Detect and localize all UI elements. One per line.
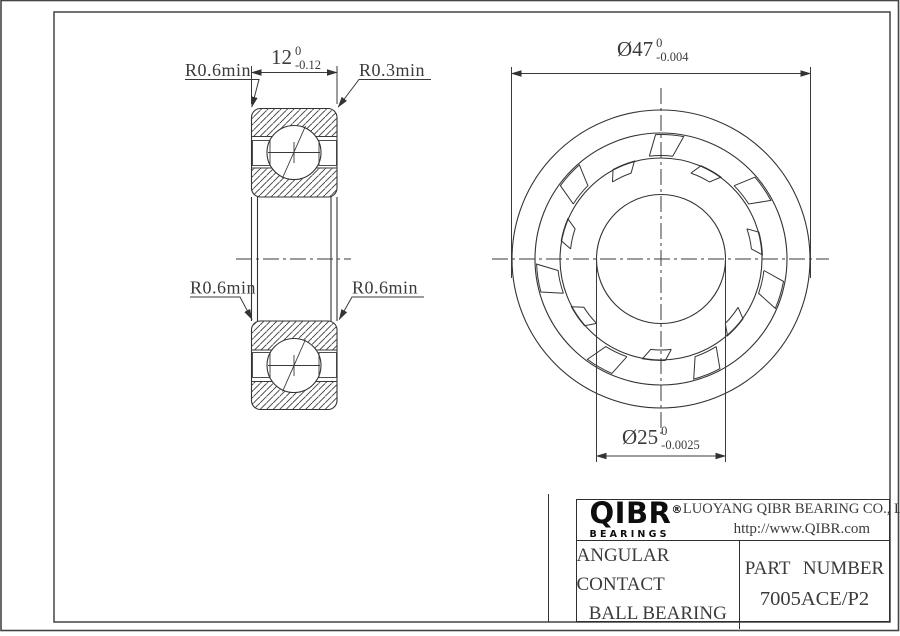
outer-dia-value: Ø47 xyxy=(617,39,653,60)
bore-dia-tol-upper: 0 xyxy=(661,424,700,438)
width-tol-lower: -0.12 xyxy=(295,58,321,72)
title-block-header-row: QIBR® BEARINGS LUOYANG QIBR BEARING CO.,… xyxy=(577,500,890,541)
company-info: LUOYANG QIBR BEARING CO., LTD http://www… xyxy=(683,501,900,538)
cage-section-right xyxy=(319,141,337,166)
outer-dia-tol-upper: 0 xyxy=(656,36,688,50)
outer-dia-tol-lower: -0.004 xyxy=(656,50,688,64)
title-block-divider-line xyxy=(548,494,549,622)
radius-label-mid-left: R0.6min xyxy=(190,278,256,298)
cross-section-view: R0.6min R0.3min R0.6min R0.6min xyxy=(185,60,431,410)
website-url: http://www.QIBR.com xyxy=(683,521,900,538)
radius-label-top-right: R0.3min xyxy=(359,60,425,80)
bore-diameter-text: Ø25 0 -0.0025 xyxy=(622,427,700,452)
engineering-drawing-canvas: R0.6min R0.3min R0.6min R0.6min xyxy=(0,0,900,636)
width-value: 12 xyxy=(271,47,292,68)
logo-tagline: BEARINGS xyxy=(590,529,683,540)
outer-diameter-text: Ø47 0 -0.004 xyxy=(617,39,688,64)
title-block: QIBR® BEARINGS LUOYANG QIBR BEARING CO.,… xyxy=(576,499,891,622)
top-section xyxy=(252,109,338,198)
radius-label-mid-right: R0.6min xyxy=(352,278,418,298)
radius-label-top-left: R0.6min xyxy=(185,60,251,80)
part-number-value: 7005ACE/P2 xyxy=(760,584,869,615)
registered-trademark-icon: ® xyxy=(671,503,683,516)
company-name: LUOYANG QIBR BEARING CO., LTD xyxy=(683,501,900,518)
product-name-line1: ANGULAR CONTACT xyxy=(577,541,740,600)
product-name-line2: BALL BEARING xyxy=(589,599,727,628)
part-number-label: PART NUMBER xyxy=(745,555,884,584)
front-view xyxy=(492,67,829,462)
bore-dia-value: Ø25 xyxy=(622,427,658,448)
cage-section-right-2 xyxy=(319,353,337,378)
part-number-cell: PART NUMBER 7005ACE/P2 xyxy=(740,541,889,629)
title-block-detail-row: ANGULAR CONTACT BALL BEARING PART NUMBER… xyxy=(577,541,890,629)
width-dimension-text: 12 0 -0.12 xyxy=(271,47,321,72)
bore-dia-tol-lower: -0.0025 xyxy=(661,438,700,452)
width-tol-upper: 0 xyxy=(295,44,321,58)
product-name-cell: ANGULAR CONTACT BALL BEARING xyxy=(577,541,741,629)
logo-text: QIBR xyxy=(590,496,672,530)
qibr-logo: QIBR® BEARINGS xyxy=(577,500,683,540)
bottom-section xyxy=(252,321,338,410)
cage-pockets xyxy=(537,134,784,379)
